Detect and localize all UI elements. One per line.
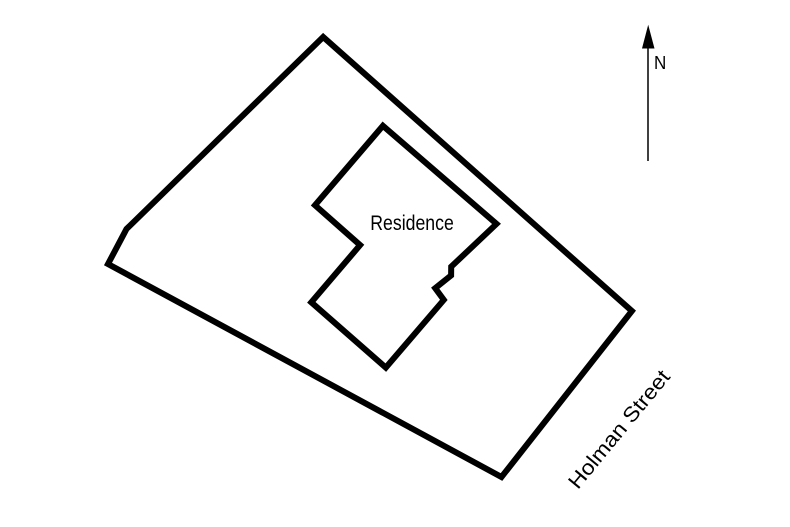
svg-text:N: N bbox=[654, 52, 666, 73]
svg-text:Holman Street: Holman Street bbox=[564, 366, 675, 494]
svg-text:Residence: Residence bbox=[370, 211, 454, 235]
